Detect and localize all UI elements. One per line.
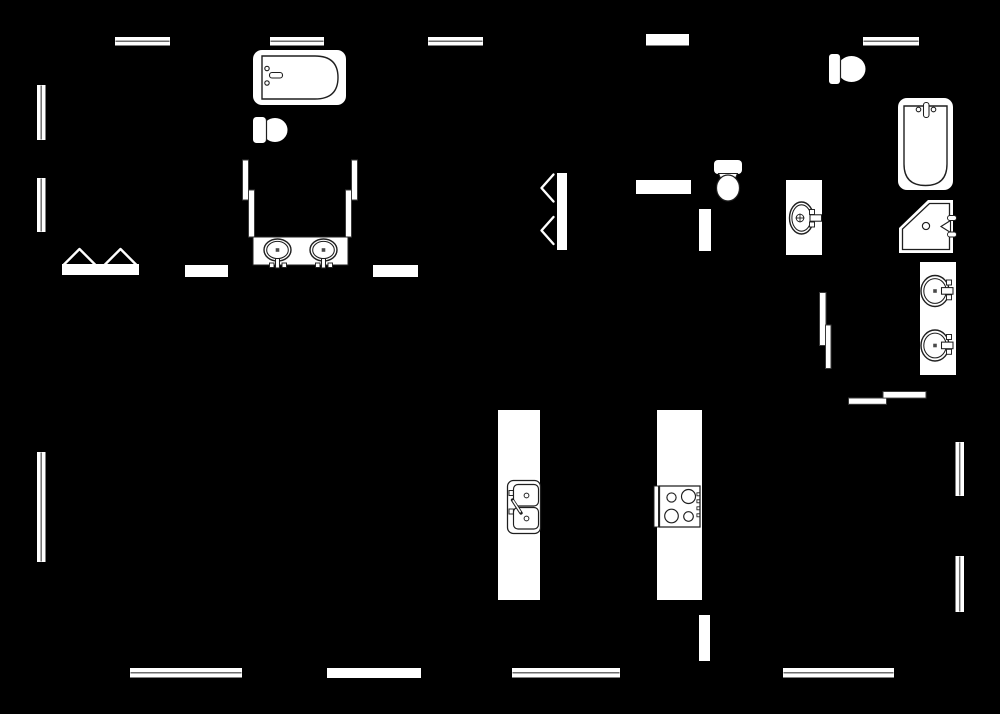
sliding-panels-master-left xyxy=(243,160,255,237)
window-master-bath xyxy=(270,37,324,46)
window-left-upper xyxy=(37,85,46,140)
bathtub-guest xyxy=(898,98,953,190)
kitchen-range-counter xyxy=(654,410,702,600)
wall-opening-top xyxy=(646,34,689,46)
window-top-right xyxy=(863,37,919,46)
vanity-double-guest xyxy=(920,262,956,375)
bathtub-master xyxy=(253,50,346,105)
window-bottom-center xyxy=(512,668,620,678)
window-left-lower xyxy=(37,452,46,562)
window-top-left xyxy=(115,37,170,46)
door-bottom xyxy=(327,668,421,678)
toilet-guest xyxy=(829,54,866,84)
kitchen-island-sink xyxy=(498,410,541,600)
sliding-door-guest xyxy=(820,293,832,369)
toilet-hall xyxy=(714,160,742,201)
closet-bifold-master xyxy=(62,249,139,275)
toilet-master xyxy=(253,117,288,143)
floorplan xyxy=(0,0,1000,714)
floorplan-svg xyxy=(0,0,1000,714)
window-right-lower xyxy=(956,556,965,612)
wall-opening-hall-left xyxy=(185,265,228,277)
shower-corner xyxy=(899,200,957,253)
window-left-mid xyxy=(37,178,46,232)
wall-opening-hall-right xyxy=(373,265,418,277)
window-right-upper xyxy=(956,442,965,496)
window-top-center xyxy=(428,37,483,46)
sliding-door-hall xyxy=(849,392,927,405)
wall-segment-kitchen xyxy=(699,615,710,661)
sliding-panels-master-right xyxy=(346,160,358,237)
window-bottom-left xyxy=(130,668,242,678)
closet-linen xyxy=(542,173,568,250)
wall-segment-hallbath-a xyxy=(636,180,691,194)
vanity-hall xyxy=(786,180,822,255)
vanity-double-master xyxy=(253,237,348,268)
wall-segment-hallbath-b xyxy=(699,209,711,251)
window-bottom-right xyxy=(783,668,894,678)
